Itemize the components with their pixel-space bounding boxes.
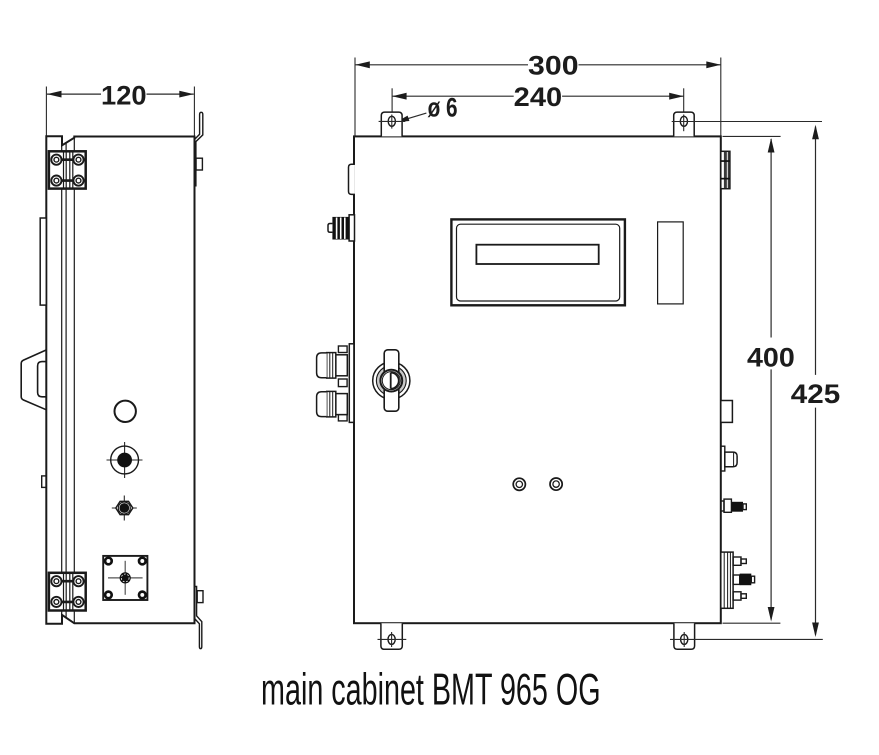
svg-text:400: 400: [747, 342, 795, 372]
svg-text:main cabinet BMT 965 OG: main cabinet BMT 965 OG: [261, 666, 601, 715]
svg-text:425: 425: [791, 379, 840, 409]
svg-text:120: 120: [101, 81, 147, 111]
svg-text:300: 300: [528, 50, 579, 80]
svg-text:ø 6: ø 6: [428, 92, 458, 122]
svg-text:240: 240: [514, 82, 562, 112]
